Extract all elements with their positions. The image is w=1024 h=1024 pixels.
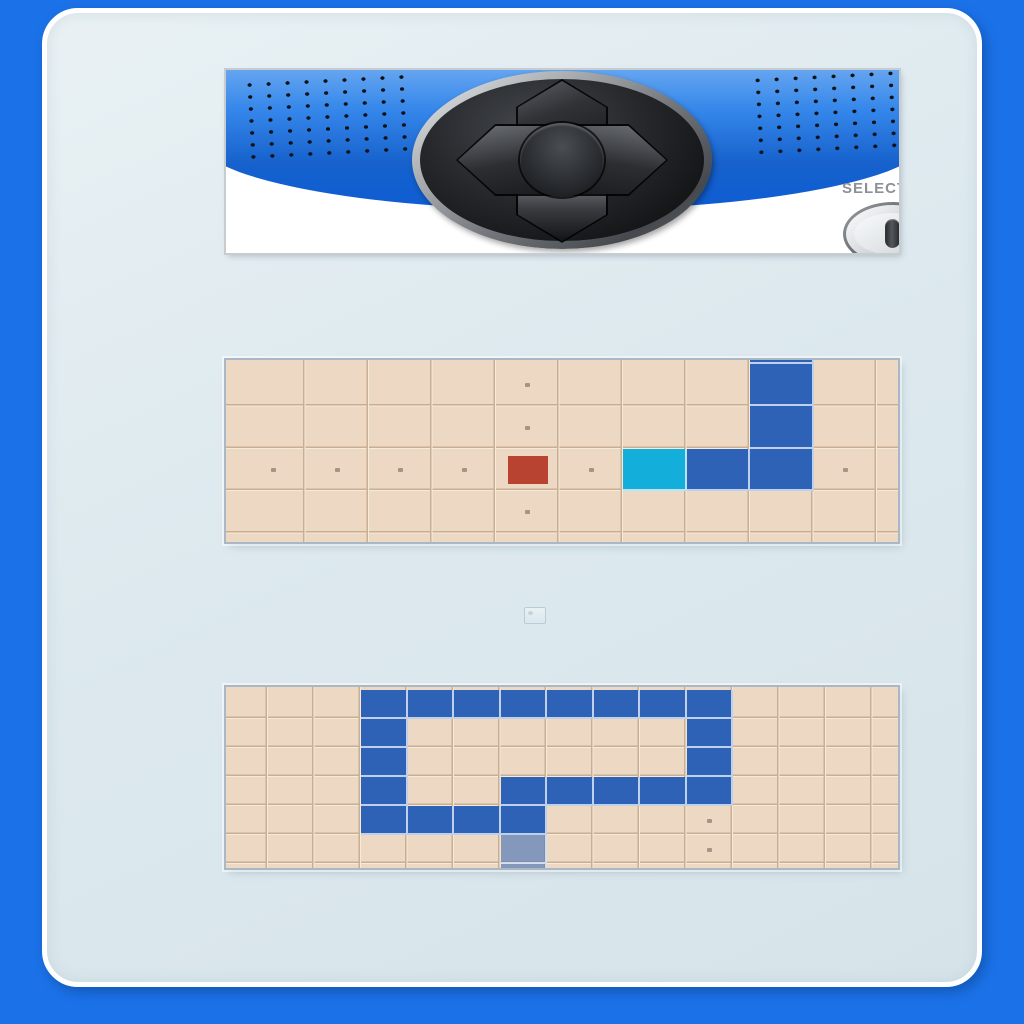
dpad <box>412 71 712 249</box>
guide-dot <box>335 468 340 472</box>
snake-body-cell <box>750 406 814 448</box>
snake-body-cell <box>361 806 408 835</box>
console-panel: SELECT <box>42 8 982 987</box>
snake-body-cell <box>501 806 548 835</box>
snake-body-cell <box>640 777 687 806</box>
dpad-center-button[interactable] <box>518 121 606 199</box>
select-label: SELECT <box>842 180 899 197</box>
snake-body-cell <box>594 690 641 719</box>
snake-body-cell <box>547 777 594 806</box>
snake-body-cell <box>501 690 548 719</box>
select-button-pill-icon <box>885 219 899 248</box>
snake-body-cell <box>361 748 408 777</box>
controller-banner: SELECT <box>226 70 899 253</box>
guide-dot <box>525 510 530 514</box>
guide-dot <box>271 468 276 472</box>
snake-body-cell <box>408 806 455 835</box>
select-button[interactable] <box>843 202 899 253</box>
food-cell <box>508 456 548 484</box>
snake-body-cell <box>501 777 548 806</box>
snake-head-cell <box>623 449 687 491</box>
snake-body-cell <box>750 360 814 364</box>
snake-body-cell <box>750 364 814 406</box>
speaker-grille-left <box>240 71 414 168</box>
snake-body-cell <box>361 777 408 806</box>
guide-dot <box>843 468 848 472</box>
snake-body-cell <box>361 690 408 719</box>
guide-dot <box>525 383 530 387</box>
snake-body-cell <box>750 449 814 491</box>
snake-body-cell <box>594 777 641 806</box>
guide-dot <box>707 848 712 852</box>
page-background: { "controller": { "select_label": "SELEC… <box>0 0 1024 1024</box>
guide-dot <box>589 468 594 472</box>
snake-body-cell <box>640 690 687 719</box>
snake-body-cell <box>361 719 408 748</box>
snake-tail-cell <box>501 864 548 868</box>
snake-body-cell <box>687 690 734 719</box>
speaker-grille-right <box>748 70 898 161</box>
snake-board-lower <box>226 687 898 868</box>
snake-body-cell <box>687 449 751 491</box>
snake-body-cell <box>408 690 455 719</box>
guide-dot <box>398 468 403 472</box>
snake-body-cell <box>687 748 734 777</box>
broken-image-icon <box>524 607 546 624</box>
snake-body-cell <box>687 777 734 806</box>
snake-body-cell <box>454 690 501 719</box>
guide-dot <box>462 468 467 472</box>
snake-body-cell <box>454 806 501 835</box>
snake-board-upper <box>226 360 898 542</box>
snake-body-cell <box>687 719 734 748</box>
snake-tail-cell <box>501 835 548 864</box>
guide-dot <box>525 426 530 430</box>
snake-body-cell <box>547 690 594 719</box>
guide-dot <box>707 819 712 823</box>
